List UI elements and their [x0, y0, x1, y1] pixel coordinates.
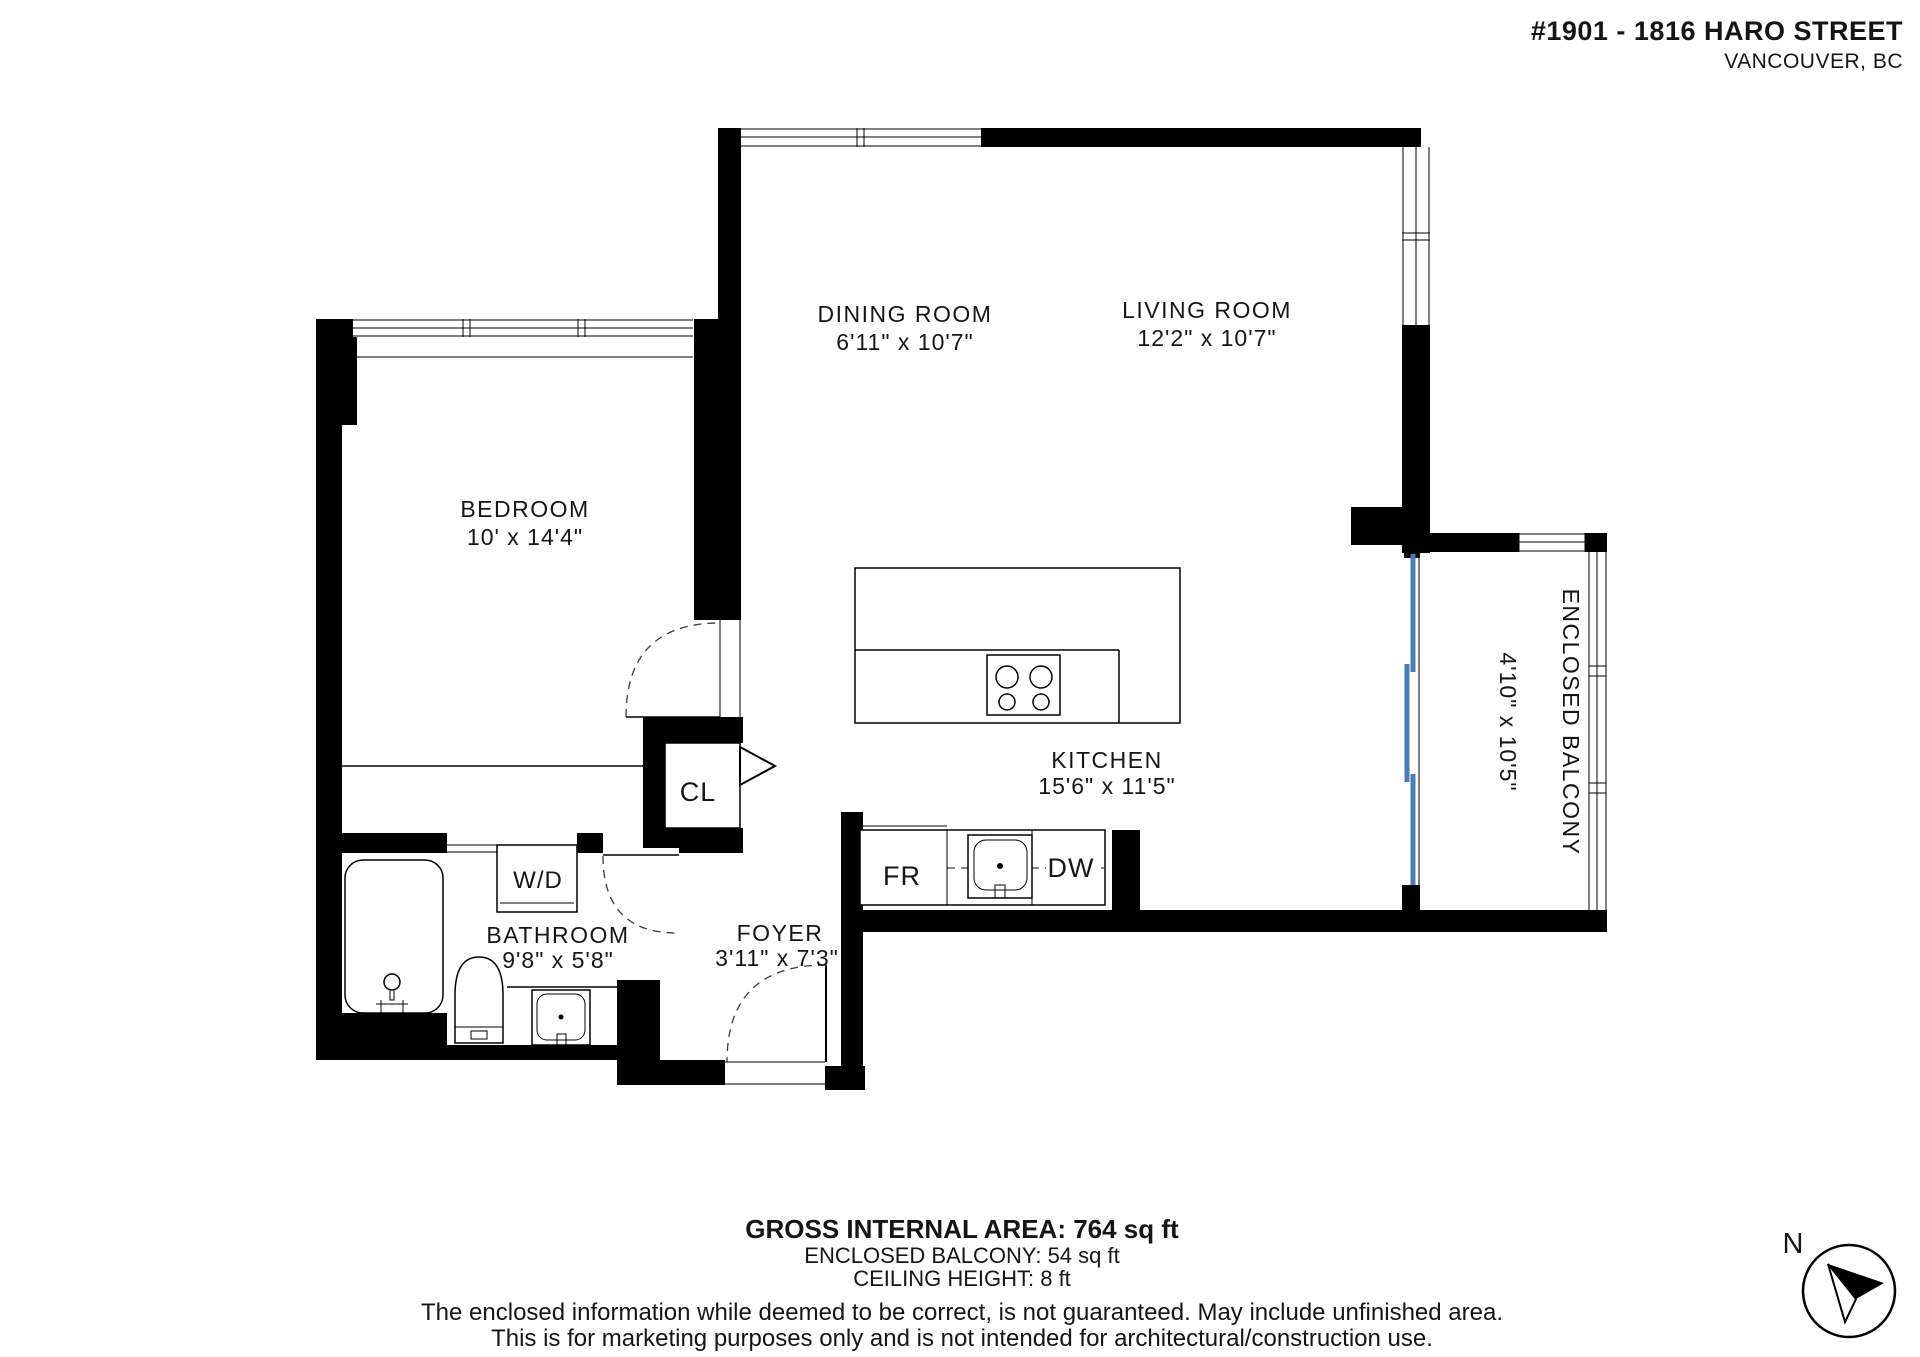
bathroom-label: BATHROOM [486, 922, 629, 948]
bedroom-door [626, 620, 740, 717]
dishwasher-label: DW [1048, 853, 1095, 883]
fixtures [342, 568, 1180, 1046]
compass-n-label: N [1783, 1228, 1804, 1260]
footer: GROSS INTERNAL AREA: 764 sq ft ENCLOSED … [421, 1214, 1503, 1352]
balcony-dims: 4'10" x 10'5" [1495, 652, 1521, 791]
foyer-dims: 3'11" x 7'3" [715, 945, 839, 971]
toilet [455, 957, 503, 1043]
disclaimer-line2: This is for marketing purposes only and … [491, 1325, 1433, 1352]
balcony-slider-door [1407, 552, 1419, 887]
foyer-label: FOYER [737, 920, 824, 946]
gross-area: GROSS INTERNAL AREA: 764 sq ft [745, 1214, 1179, 1244]
washer-dryer-label: W/D [513, 867, 563, 894]
bedroom-dims: 10' x 14'4" [467, 524, 583, 550]
address-line1: #1901 - 1816 HARO STREET [1531, 16, 1903, 46]
living-dims: 12'2" x 10'7" [1137, 325, 1276, 351]
dining-dims: 6'11" x 10'7" [836, 329, 973, 355]
floorplan-drawing: #1901 - 1816 HARO STREET VANCOUVER, BC B… [0, 0, 1920, 1357]
kitchen-dims: 15'6" x 11'5" [1038, 773, 1175, 799]
address-line2: VANCOUVER, BC [1724, 50, 1903, 73]
kitchen-island [855, 568, 1180, 723]
ceiling-height: CEILING HEIGHT: 8 ft [853, 1266, 1071, 1291]
vanity-sink [507, 987, 620, 1046]
bathroom-dims: 9'8" x 5'8" [502, 947, 614, 973]
closet-door-icon [740, 747, 775, 785]
fridge-label: FR [883, 861, 921, 891]
dining-label: DINING ROOM [818, 301, 993, 327]
disclaimer-line1: The enclosed information while deemed to… [421, 1299, 1503, 1326]
balcony-label: ENCLOSED BALCONY [1558, 589, 1584, 856]
bedroom-label: BEDROOM [460, 496, 589, 522]
kitchen-sink [968, 835, 1032, 898]
bathtub [345, 860, 443, 1013]
closet-label: CL [680, 777, 717, 807]
entry-door [723, 965, 826, 1084]
compass: N [1783, 1228, 1895, 1337]
kitchen-label: KITCHEN [1051, 747, 1162, 773]
balcony-area: ENCLOSED BALCONY: 54 sq ft [804, 1243, 1119, 1268]
floorplan-page: #1901 - 1816 HARO STREET VANCOUVER, BC B… [0, 0, 1920, 1357]
living-label: LIVING ROOM [1122, 297, 1292, 323]
